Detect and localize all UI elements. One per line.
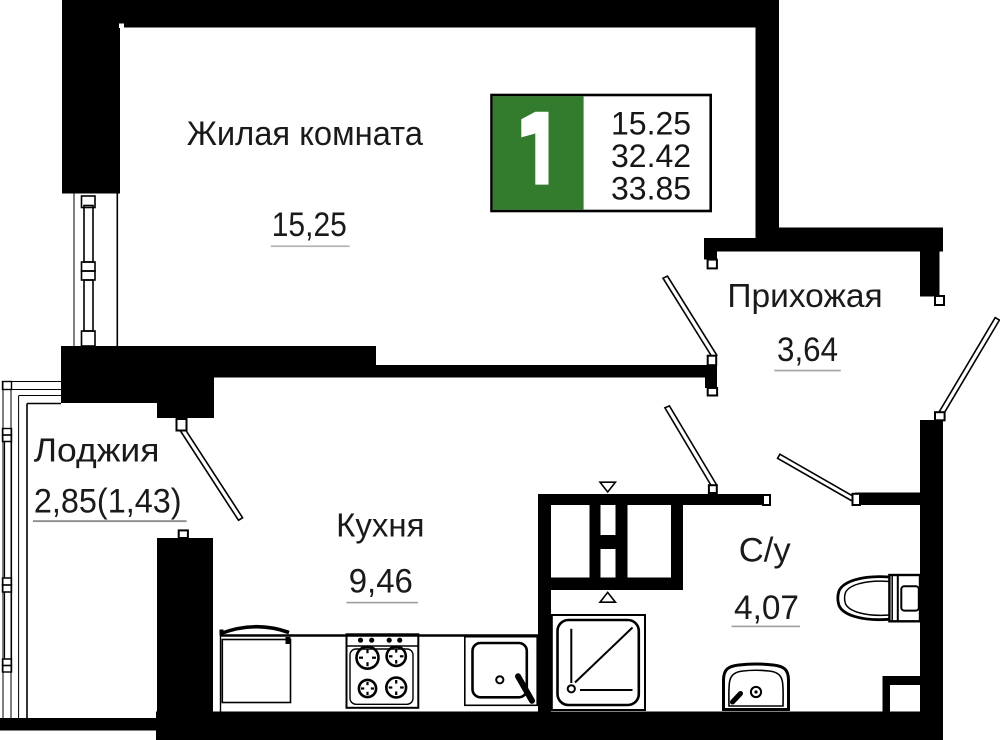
svg-text:Жилая комната: Жилая комната [187,115,423,153]
svg-text:33.85: 33.85 [611,170,691,206]
svg-text:2,85(1,43): 2,85(1,43) [34,482,182,520]
svg-text:3,64: 3,64 [777,330,838,369]
svg-text:Кухня: Кухня [336,507,424,544]
svg-text:4,07: 4,07 [734,590,799,627]
svg-text:С/у: С/у [739,532,792,570]
svg-text:Лоджия: Лоджия [34,432,160,469]
svg-text:Прихожая: Прихожая [727,278,882,315]
svg-text:15.25: 15.25 [611,105,691,141]
svg-text:15,25: 15,25 [272,205,347,243]
svg-text:9,46: 9,46 [349,563,413,601]
svg-text:32.42: 32.42 [611,138,691,174]
